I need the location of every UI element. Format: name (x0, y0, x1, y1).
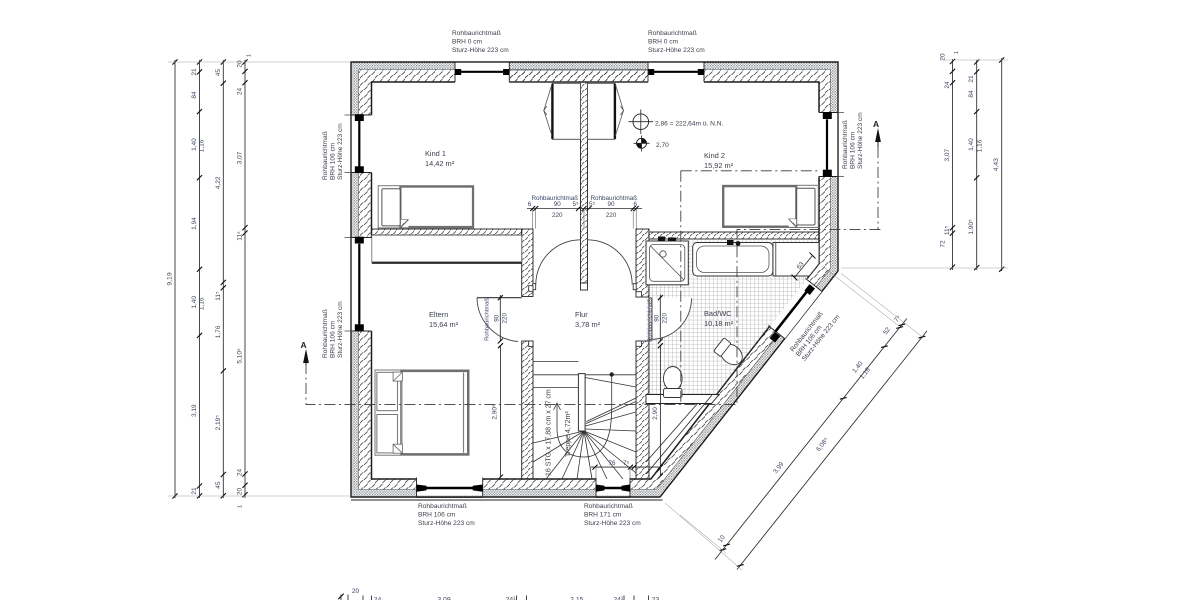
svg-text:24: 24 (237, 469, 244, 477)
svg-text:5⁵: 5⁵ (589, 201, 596, 208)
svg-text:Flur: Flur (575, 310, 588, 319)
svg-text:15,64 m²: 15,64 m² (429, 320, 459, 329)
svg-text:15,92 m²: 15,92 m² (704, 161, 734, 170)
svg-text:Sturz-Höhe 223 cm: Sturz-Höhe 223 cm (418, 520, 475, 527)
svg-text:10,18 m²: 10,18 m² (704, 319, 734, 328)
svg-text:BRH 171 cm: BRH 171 cm (584, 512, 622, 519)
svg-text:76: 76 (608, 460, 616, 467)
svg-text:Sturz-Höhe 223 cm: Sturz-Höhe 223 cm (452, 47, 509, 54)
svg-text:2,90: 2,90 (652, 407, 659, 420)
svg-text:2,19⁵: 2,19⁵ (215, 415, 222, 431)
svg-text:16 STG x 17,88 cm x 27 cm: 16 STG x 17,88 cm x 27 cm (546, 389, 553, 476)
svg-text:220: 220 (501, 313, 508, 324)
svg-text:7⁵: 7⁵ (623, 460, 630, 467)
svg-text:2,70: 2,70 (656, 142, 669, 149)
svg-text:Rohbaurichtmaß: Rohbaurichtmaß (322, 131, 329, 180)
svg-text:Bad/WC: Bad/WC (704, 309, 732, 318)
svg-text:BRH 0 cm: BRH 0 cm (452, 39, 483, 46)
svg-text:20: 20 (940, 53, 947, 61)
svg-text:220: 220 (606, 212, 617, 219)
svg-text:90: 90 (554, 201, 562, 208)
svg-text:Eltern: Eltern (429, 310, 448, 319)
svg-text:1,94: 1,94 (191, 217, 198, 230)
svg-text:1,90⁵: 1,90⁵ (968, 219, 975, 235)
svg-text:Rohbaurichtmaß: Rohbaurichtmaß (322, 309, 329, 358)
svg-text:3,78 m²: 3,78 m² (575, 320, 601, 329)
svg-text:1: 1 (238, 505, 244, 508)
svg-text:11⁵: 11⁵ (215, 291, 222, 301)
svg-text:Sturz-Höhe 223 cm: Sturz-Höhe 223 cm (584, 520, 641, 527)
svg-text:21: 21 (968, 75, 975, 83)
svg-text:20: 20 (237, 488, 244, 496)
svg-text:BRH 106 cm: BRH 106 cm (850, 131, 857, 169)
svg-text:1,16: 1,16 (977, 139, 984, 152)
svg-text:24: 24 (374, 597, 382, 600)
svg-text:BRH 0 cm: BRH 0 cm (648, 39, 679, 46)
svg-text:A: A (873, 119, 879, 129)
svg-text:1: 1 (954, 51, 960, 54)
svg-text:24¹: 24¹ (506, 597, 517, 600)
svg-text:2,86 = 222,64m ü. N.N.: 2,86 = 222,64m ü. N.N. (655, 121, 724, 128)
svg-text:9,19: 9,19 (167, 272, 174, 285)
svg-text:11⁵: 11⁵ (944, 225, 951, 235)
svg-text:24: 24 (944, 81, 951, 89)
svg-text:Rohbaurichtmaß: Rohbaurichtmaß (532, 195, 579, 202)
svg-text:1,40: 1,40 (968, 138, 975, 151)
svg-text:Rohbaurichtmaß: Rohbaurichtmaß (591, 195, 638, 202)
svg-text:Kind 2: Kind 2 (704, 151, 725, 160)
svg-text:220: 220 (552, 212, 563, 219)
svg-text:45: 45 (215, 69, 222, 77)
svg-text:BRH 106 cm: BRH 106 cm (330, 142, 337, 180)
svg-text:1,16: 1,16 (199, 297, 206, 310)
svg-text:Sturz-Höhe 223 cm: Sturz-Höhe 223 cm (337, 123, 344, 180)
svg-text:20: 20 (237, 60, 244, 68)
svg-text:Treppe 4,72m²: Treppe 4,72m² (565, 411, 572, 457)
svg-text:90: 90 (607, 201, 615, 208)
svg-text:90: 90 (654, 314, 661, 322)
svg-text:3,19: 3,19 (191, 404, 198, 417)
svg-text:4,43: 4,43 (993, 158, 1000, 171)
svg-text:6: 6 (528, 201, 532, 208)
svg-text:Rohbaurichtmaß: Rohbaurichtmaß (485, 298, 491, 341)
svg-text:Sturz-Höhe 223 cm: Sturz-Höhe 223 cm (337, 301, 344, 358)
svg-text:3,07: 3,07 (944, 148, 951, 161)
svg-text:Rohbaurichtmaß: Rohbaurichtmaß (584, 503, 633, 510)
svg-text:Sturz-Höhe 223 cm: Sturz-Höhe 223 cm (648, 47, 705, 54)
svg-text:45: 45 (215, 481, 222, 489)
svg-text:BRH 106 cm: BRH 106 cm (418, 512, 456, 519)
svg-text:1,16: 1,16 (199, 139, 206, 152)
svg-text:21: 21 (191, 68, 198, 76)
svg-text:84: 84 (968, 90, 975, 98)
svg-text:6: 6 (633, 201, 637, 208)
svg-text:Rohbaurichtmaß: Rohbaurichtmaß (418, 503, 467, 510)
svg-text:Sturz-Höhe 223 cm: Sturz-Höhe 223 cm (857, 112, 864, 169)
svg-text:90: 90 (494, 314, 501, 322)
svg-text:Rohbaurichtmaß: Rohbaurichtmaß (452, 30, 501, 37)
svg-text:5⁵: 5⁵ (572, 201, 579, 208)
svg-text:Kind 1: Kind 1 (425, 149, 446, 158)
svg-text:1,76: 1,76 (215, 325, 222, 338)
svg-text:5,10⁵: 5,10⁵ (237, 348, 244, 364)
svg-text:3,07: 3,07 (237, 151, 244, 164)
svg-text:1,40: 1,40 (191, 296, 198, 309)
svg-text:1,40: 1,40 (191, 138, 198, 151)
svg-text:24: 24 (237, 88, 244, 96)
svg-text:4,22: 4,22 (215, 176, 222, 189)
svg-text:BRH 106 cm: BRH 106 cm (330, 320, 337, 358)
svg-text:Rohbaurichtmaß: Rohbaurichtmaß (648, 299, 654, 342)
svg-text:A: A (301, 340, 307, 350)
svg-text:21: 21 (191, 487, 198, 495)
svg-text:3,09: 3,09 (437, 597, 450, 600)
svg-text:72: 72 (940, 240, 947, 248)
svg-text:2,15: 2,15 (570, 597, 583, 600)
svg-text:11⁵: 11⁵ (237, 231, 244, 241)
svg-text:23: 23 (652, 597, 660, 600)
svg-text:24¹: 24¹ (613, 597, 624, 600)
svg-text:1: 1 (247, 54, 253, 57)
svg-text:220: 220 (661, 313, 668, 324)
svg-text:2,90⁵: 2,90⁵ (492, 404, 499, 420)
svg-text:84: 84 (191, 91, 198, 99)
svg-text:Rohbaurichtmaß: Rohbaurichtmaß (842, 120, 849, 169)
svg-text:20: 20 (352, 588, 360, 595)
svg-text:14,42 m²: 14,42 m² (425, 159, 455, 168)
svg-text:Rohbaurichtmaß: Rohbaurichtmaß (648, 30, 697, 37)
